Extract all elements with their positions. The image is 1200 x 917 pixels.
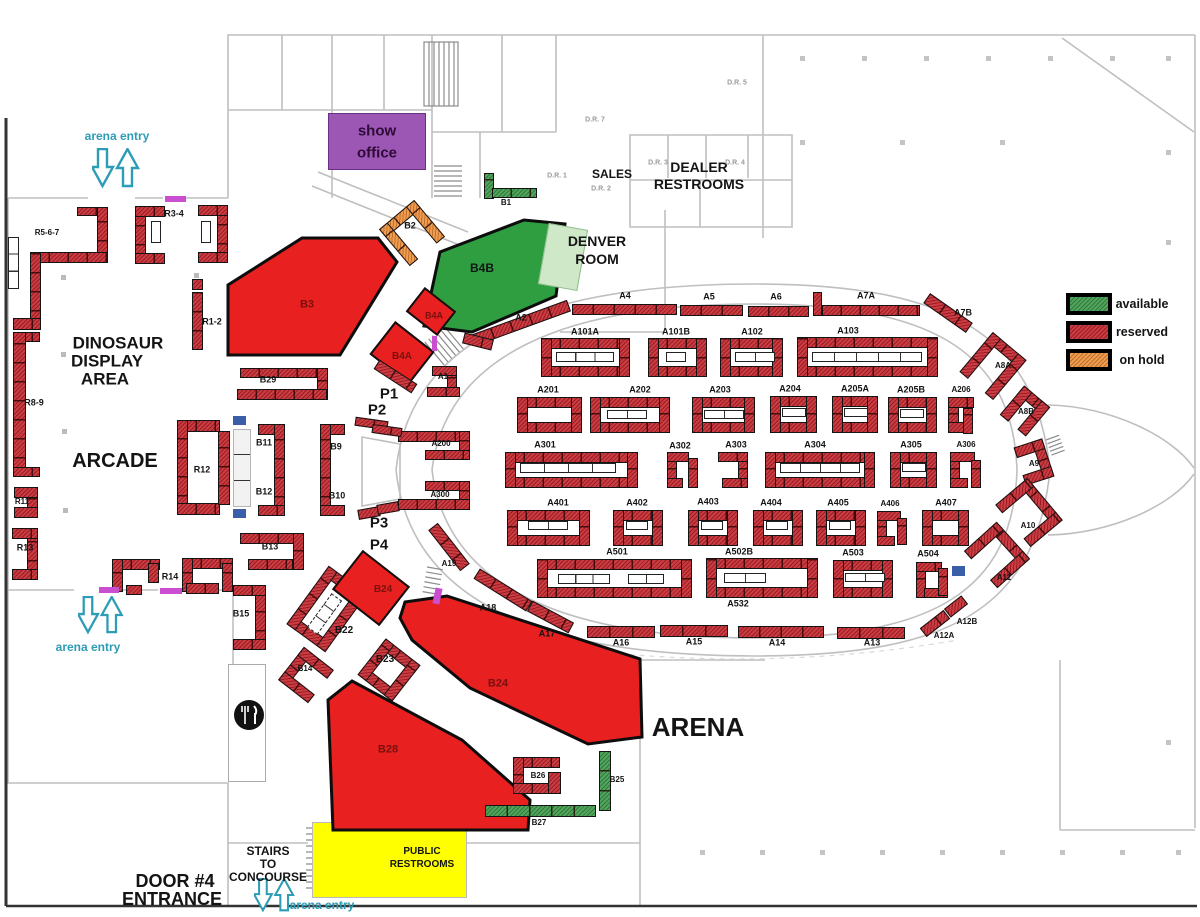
label-a302: A302 (669, 442, 691, 451)
table (666, 352, 686, 362)
arena-entry-top: arena entry (85, 130, 150, 142)
label-a402: A402 (626, 499, 648, 508)
public-restrooms-line2: RESTROOMS (390, 860, 454, 870)
booth-r12 (177, 503, 220, 515)
label-a9: A9 (1029, 460, 1039, 468)
table (735, 352, 775, 362)
booth-a205b-part (888, 397, 899, 433)
label-a16: A16 (613, 639, 630, 648)
table (558, 574, 610, 584)
label-a405: A405 (827, 499, 849, 508)
booth-r13 (12, 528, 38, 580)
label-a305: A305 (900, 441, 922, 450)
floor-plan: availablereservedon holdDINOSAURDISPLAYA… (0, 0, 1200, 917)
booth-a101a-part (541, 366, 630, 377)
booth-r12 (177, 420, 188, 515)
booth-a305-part (926, 452, 937, 488)
label-r8-9: R8-9 (24, 399, 44, 408)
legend-swatch-on-hold (1066, 349, 1112, 371)
table (628, 574, 664, 584)
booth-a502b-part (706, 587, 818, 598)
booth-b29 (240, 368, 328, 378)
table (556, 352, 614, 362)
booth-a304-part (765, 452, 776, 488)
label-a10: A10 (1021, 522, 1036, 530)
booth-b13 (293, 533, 304, 570)
booth-a204-part (770, 396, 781, 433)
label-a303: A303 (725, 441, 747, 450)
booth-a15 (660, 625, 728, 637)
label-to: TO (260, 858, 276, 870)
label-b3: B3 (300, 300, 314, 311)
booth-a7a (813, 292, 822, 316)
booth-a1 (427, 387, 460, 397)
label-a8b: A8B (1018, 408, 1034, 416)
booth-r3-4r-part (198, 252, 228, 263)
booth-a205a-part (867, 396, 878, 433)
label-sales: SALES (592, 168, 632, 180)
booth-a501-part (681, 559, 692, 598)
booth-a203-part (692, 397, 703, 433)
booth-a202-part (590, 397, 670, 408)
booth-a303 (718, 452, 748, 462)
booth-b11-b12 (258, 505, 285, 516)
booth-a103-part (797, 337, 808, 377)
booth-a202-part (590, 422, 670, 433)
blue-marker (233, 416, 246, 425)
booth-b15-part (233, 639, 266, 650)
label-d-r-3: D.R. 3 (648, 160, 668, 167)
booth-a304-part (864, 452, 875, 488)
label-a202: A202 (629, 386, 651, 395)
booth-r14a (126, 585, 142, 595)
booth-r3-4l-part (135, 253, 165, 264)
label-a103: A103 (837, 327, 859, 336)
booth-a404-part (792, 510, 803, 546)
label-room: ROOM (575, 252, 619, 266)
label-b23: B23 (376, 655, 394, 665)
booth-a102-part (720, 338, 731, 377)
label-a201: A201 (537, 386, 559, 395)
label-denver: DENVER (568, 234, 626, 248)
label-stairs: STAIRS (246, 845, 289, 857)
legend-swatch-available (1066, 293, 1112, 315)
label-a203: A203 (709, 386, 731, 395)
table (902, 463, 926, 472)
label-a15: A15 (686, 638, 703, 647)
booth-a301-part (505, 477, 638, 488)
label-d-r-1: D.R. 1 (547, 173, 567, 180)
label-a501: A501 (606, 548, 628, 557)
booth-b11-b12 (274, 424, 285, 516)
booth-a103-part (797, 366, 938, 377)
booth-a302 (667, 452, 689, 462)
booth-a101a-part (619, 338, 630, 377)
label-a17: A17 (539, 630, 556, 639)
blue-marker (952, 566, 965, 576)
booth-r8-9 (13, 467, 40, 477)
label-p2: P2 (368, 403, 386, 418)
table (829, 521, 851, 530)
legend-label-reserved: reserved (1116, 326, 1168, 339)
booth-a5-part (680, 305, 743, 316)
label-r13: R13 (17, 544, 34, 553)
booth-a403-part (727, 510, 738, 546)
booth-a401-part (507, 510, 518, 546)
table (233, 429, 251, 507)
label-r1-2: R1-2 (202, 318, 222, 327)
booth-b27 (485, 805, 596, 817)
booth-r3-4l-part (135, 206, 165, 217)
label-a306: A306 (956, 441, 975, 449)
table (766, 521, 788, 530)
label-a301: A301 (534, 441, 556, 450)
label-a205a: A205A (841, 385, 869, 394)
dealer-restrooms-line2: RESTROOMS (654, 177, 744, 191)
label-a14: A14 (769, 639, 786, 648)
booth-a202-part (659, 397, 670, 433)
label-dinosaur: DINOSAUR (73, 335, 164, 352)
table (607, 410, 647, 419)
booth-a406 (877, 536, 895, 546)
label-office: office (357, 146, 397, 161)
label-b28: B28 (378, 745, 398, 756)
booth-a201-part (571, 397, 582, 433)
label-b11: B11 (256, 439, 272, 448)
table (844, 408, 868, 417)
label-b12: B12 (256, 488, 273, 497)
booth-b1 (492, 188, 537, 198)
label-a12a: A12A (934, 632, 954, 640)
legend-swatch-reserved (1066, 321, 1112, 343)
booth-r14b (186, 583, 219, 594)
booth-a103-part (927, 337, 938, 377)
table (151, 221, 161, 243)
label-arcade: ARCADE (72, 451, 158, 471)
label-a406: A406 (880, 500, 899, 508)
table (8, 237, 19, 289)
booth-a305-part (890, 452, 901, 488)
booth-b27-part (485, 805, 596, 817)
label-b1: B1 (501, 199, 511, 207)
booth-a5 (680, 305, 743, 316)
label-a403: A403 (697, 498, 719, 507)
label-concourse: CONCOURSE (229, 871, 307, 883)
label-p3: P3 (370, 516, 388, 531)
label-a102: A102 (741, 328, 763, 337)
booth-a301-part (505, 452, 638, 463)
label-door-4: DOOR #4 (135, 872, 214, 890)
label-b25: B25 (610, 776, 625, 784)
booth-b26 (548, 772, 561, 794)
booth-r5-6-7 (13, 318, 41, 330)
label-a532: A532 (727, 600, 749, 609)
label-b2: B2 (404, 222, 416, 231)
label-a8a: A8A (995, 362, 1011, 370)
booth-b26 (513, 783, 550, 794)
arena-entry-bottom: arena entry (290, 899, 355, 911)
booth-a302 (667, 478, 683, 488)
label-b4b: B4B (470, 262, 494, 274)
table (724, 573, 766, 583)
table (900, 409, 924, 418)
booth-a501-part (537, 559, 692, 570)
table (845, 573, 885, 582)
booth-a405-part (855, 510, 866, 546)
label-a502b: A502B (725, 548, 753, 557)
booth-a401-part (579, 510, 590, 546)
booth-a504 (938, 568, 948, 596)
label-b9: B9 (330, 443, 342, 452)
arena-entry-arrows-0 (92, 148, 142, 190)
label-a18: A18 (480, 604, 497, 613)
booth-a101a-part (541, 338, 552, 377)
booth-a7a (822, 305, 920, 316)
table (704, 410, 744, 419)
label-d-r-5: D.R. 5 (727, 80, 747, 87)
booth-r12 (218, 431, 230, 505)
label-b27: B27 (532, 819, 547, 827)
table (520, 463, 616, 473)
label-a101a: A101A (571, 328, 599, 337)
booth-r13-part (12, 569, 38, 580)
label-r3-4: R3-4 (164, 210, 184, 219)
label-a6: A6 (770, 293, 782, 302)
booth-a406 (897, 518, 907, 545)
table (528, 521, 568, 530)
booth-a205a-part (832, 396, 843, 433)
label-a19: A19 (442, 560, 457, 568)
booth-a407-part (922, 510, 933, 546)
booth-a201 (517, 397, 582, 433)
booth-a4-part (572, 304, 677, 315)
booth-a402-part (613, 510, 624, 546)
label-a5: A5 (703, 293, 715, 302)
label-p1: P1 (380, 387, 398, 402)
label-b22: B22 (335, 626, 353, 636)
booth-a4 (572, 304, 677, 315)
label-a2: A2 (515, 314, 527, 323)
label-a503: A503 (842, 549, 864, 558)
booth-a203-part (744, 397, 755, 433)
label-b15: B15 (233, 610, 250, 619)
table (780, 463, 860, 473)
door-marker (160, 588, 182, 594)
label-a300: A300 (430, 491, 449, 499)
b4a-upper-label: B4A (425, 312, 443, 321)
arena-entry-mid: arena entry (56, 641, 121, 653)
label-a101b: A101B (662, 328, 690, 337)
label-show: show (358, 124, 396, 139)
label-b26: B26 (531, 772, 546, 780)
booth-a404-part (753, 510, 764, 546)
booth-a502b-part (706, 558, 717, 598)
booth-b13 (248, 559, 293, 570)
legend-label-available: available (1116, 298, 1169, 311)
booth-b29 (237, 389, 327, 400)
booth-a407-part (958, 510, 969, 546)
label-a205b: A205B (897, 386, 925, 395)
label-a11: A11 (997, 574, 1011, 582)
b24-large-label: B24 (488, 679, 508, 690)
label-b10: B10 (329, 492, 346, 501)
booth-a101a-part (541, 338, 630, 349)
booth-a101b-part (696, 338, 707, 377)
booth-a306 (950, 478, 968, 488)
label-entrance: ENTRANCE (122, 890, 222, 908)
label-b14: B14 (298, 665, 313, 673)
booth-a401-part (507, 510, 590, 521)
label-b13: B13 (262, 543, 279, 552)
booth-a402-part (652, 510, 663, 546)
label-d-r-4: D.R. 4 (725, 160, 745, 167)
booth-a205b-part (926, 397, 937, 433)
booth-a6 (748, 306, 809, 317)
booth-a304-part (765, 452, 875, 463)
booth-a15-part (660, 625, 728, 637)
label-d-r-2: D.R. 2 (591, 186, 611, 193)
label-dealer: DEALER (670, 160, 728, 174)
booth-r14b (222, 563, 233, 592)
booth-a14 (738, 626, 824, 638)
b4a-lower-label: B4A (392, 352, 412, 362)
booth-a201-part (517, 397, 528, 433)
label-a12b: A12B (957, 618, 977, 626)
booth-a14-part (738, 626, 824, 638)
label-d-r-7: D.R. 7 (585, 117, 605, 124)
door-marker (99, 587, 119, 593)
booth-a301-part (505, 452, 516, 488)
booth-r11-part (14, 507, 38, 518)
booth-b9-b10 (320, 505, 345, 516)
booth-a101b-part (648, 338, 659, 377)
booth-a304-part (765, 477, 875, 488)
legend-label-on-hold: on hold (1119, 354, 1164, 367)
table (201, 221, 211, 243)
door-marker (432, 336, 437, 351)
label-b29: B29 (260, 376, 277, 385)
label-arena: ARENA (652, 714, 744, 740)
table (626, 521, 648, 530)
label-a4: A4 (619, 292, 631, 301)
booth-a502b-part (706, 558, 818, 569)
label-public: PUBLIC (403, 847, 440, 857)
label-p4: P4 (370, 538, 388, 553)
booth-b3 (225, 235, 400, 358)
table (701, 521, 723, 530)
label-a204: A204 (779, 385, 801, 394)
label-area: AREA (81, 371, 129, 388)
label-r12: R12 (194, 466, 211, 475)
label-r11: R11 (15, 498, 29, 506)
booth-a401-part (507, 535, 590, 546)
booth-a206 (948, 397, 974, 408)
booth-a300 (398, 499, 470, 510)
label-a7b: A7B (954, 309, 972, 318)
label-a401: A401 (547, 499, 569, 508)
door-marker (165, 196, 186, 202)
label-r14: R14 (162, 573, 179, 582)
label-a304: A304 (804, 441, 826, 450)
arena-entry-arrows-1 (78, 596, 126, 636)
booth-r14a (148, 563, 159, 583)
booth-r13-part (12, 528, 38, 539)
label-a504: A504 (917, 550, 939, 559)
label-r5-6-7: R5-6-7 (35, 229, 59, 237)
booth-a301-part (627, 452, 638, 488)
booth-a202-part (590, 397, 601, 433)
booth-a6-part (748, 306, 809, 317)
booth-a502b-part (807, 558, 818, 598)
booth-a302 (688, 458, 698, 488)
booth-b9-b10 (320, 424, 331, 516)
booth-a407 (922, 510, 969, 546)
label-a206: A206 (951, 386, 970, 394)
b24-small-label: B24 (374, 585, 392, 595)
table (782, 408, 806, 417)
restaurant-icon (233, 699, 265, 731)
booth-r3-4r-part (198, 205, 228, 216)
label-a13: A13 (864, 639, 881, 648)
booth-r5-6-7 (30, 252, 108, 263)
blue-marker (233, 509, 246, 518)
label-a200: A200 (431, 440, 450, 448)
label-a1: A1 (438, 373, 448, 381)
label-a407: A407 (935, 499, 957, 508)
booth-a503-part (833, 560, 844, 598)
booth-a206 (963, 408, 973, 434)
label-display: DISPLAY (71, 353, 143, 370)
label-a404: A404 (760, 499, 782, 508)
booth-a204-part (806, 396, 817, 433)
booth-a306 (971, 460, 981, 488)
booth-a200 (425, 450, 470, 460)
label-a7a: A7A (857, 292, 875, 301)
booth-a103-part (797, 337, 938, 348)
booth-a405-part (816, 510, 827, 546)
table (812, 352, 922, 362)
booth-a403-part (688, 510, 699, 546)
booth-a303 (722, 478, 748, 488)
booth-b15-part (233, 585, 266, 596)
booth-r1-2 (192, 279, 203, 290)
